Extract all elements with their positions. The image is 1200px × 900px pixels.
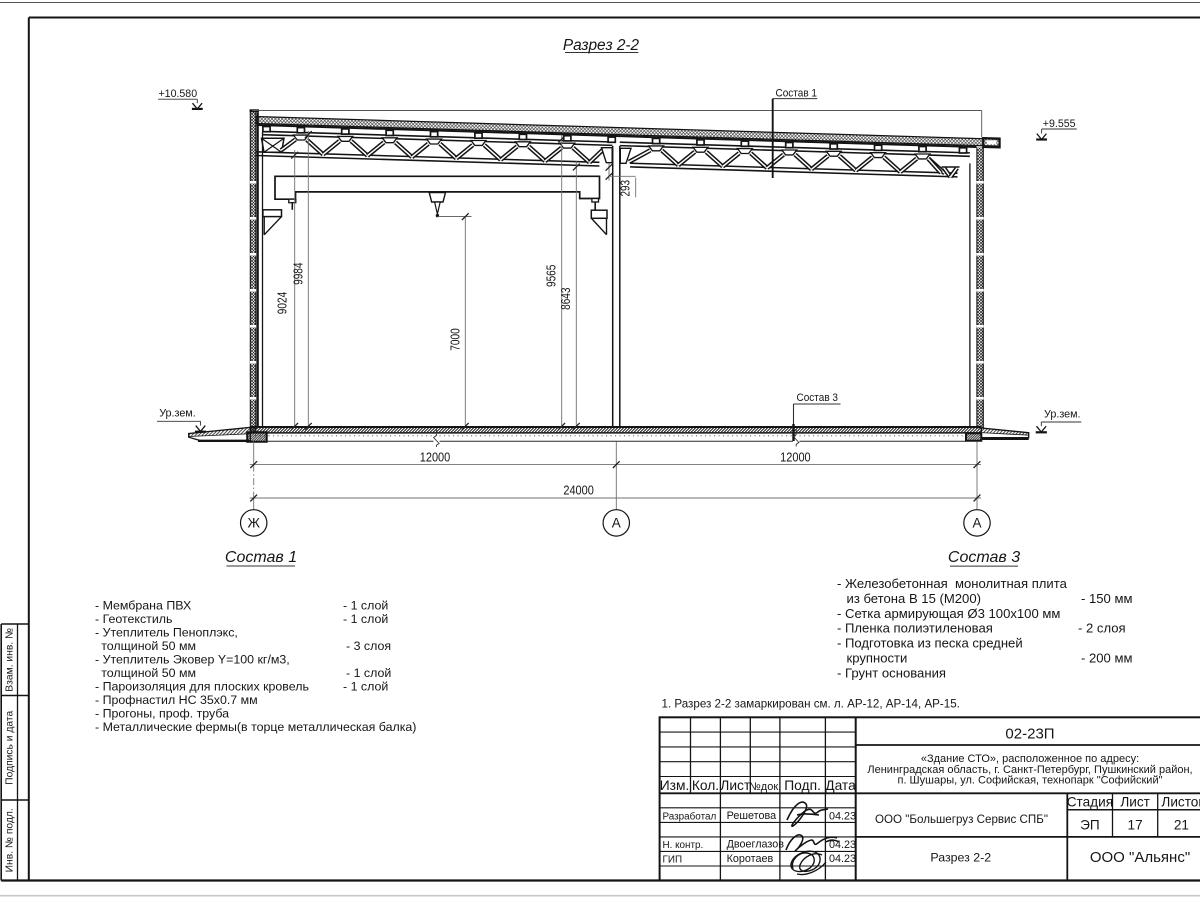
svg-text:Коротаев: Коротаев — [727, 853, 774, 865]
svg-text:Разработал: Разработал — [663, 812, 717, 823]
svg-text:Состав 1: Состав 1 — [776, 88, 818, 100]
svg-text:1. Разрез 2-2 замаркирован см.: 1. Разрез 2-2 замаркирован см. л. АР-12,… — [662, 698, 960, 711]
svg-text:п. Шушары, ул. Софийская, техн: п. Шушары, ул. Софийская, технопарк "Соф… — [897, 775, 1162, 787]
svg-text:- Профнастил НС 35х0.7 мм: - Профнастил НС 35х0.7 мм — [95, 693, 258, 707]
svg-text:Подпись и дата: Подпись и дата — [5, 710, 16, 784]
svg-text:- Утеплитель Эковер Y=100 кг/м: - Утеплитель Эковер Y=100 кг/м3, — [95, 653, 290, 667]
svg-text:12000: 12000 — [420, 449, 451, 464]
svg-text:толщиной 50 мм: толщиной 50 мм — [95, 666, 196, 680]
svg-text:из бетона В 15 (М200): из бетона В 15 (М200) — [847, 591, 982, 606]
svg-text:- 1 слой: - 1 слой — [343, 680, 388, 694]
svg-text:Состав 3: Состав 3 — [948, 549, 1020, 566]
svg-text:8643: 8643 — [559, 288, 573, 310]
svg-text:Лист: Лист — [1120, 795, 1150, 810]
svg-text:Ж: Ж — [247, 516, 260, 531]
svg-text:12000: 12000 — [780, 449, 811, 464]
svg-text:Инв. № подл.: Инв. № подл. — [5, 808, 16, 872]
svg-text:Кол.: Кол. — [692, 778, 719, 793]
svg-text:- Пароизоляция для плоских кро: - Пароизоляция для плоских кровель — [95, 680, 309, 694]
svg-text:ЭП: ЭП — [1080, 818, 1100, 833]
svg-text:Состав 1: Состав 1 — [225, 549, 297, 566]
svg-text:ООО "Альянс": ООО "Альянс" — [1090, 849, 1190, 866]
svg-text:293: 293 — [619, 180, 633, 197]
svg-text:- Металлические фермы(в торце: - Металлические фермы(в торце металличес… — [95, 720, 416, 734]
svg-text:Двоеглазов: Двоеглазов — [727, 839, 785, 851]
svg-text:Н. контр.: Н. контр. — [663, 840, 704, 851]
svg-text:- Грунт основания: - Грунт основания — [837, 665, 946, 680]
svg-text:Подп.: Подп. — [784, 778, 821, 793]
svg-text:+10.580: +10.580 — [159, 88, 198, 100]
svg-text:Ур.зем.: Ур.зем. — [1044, 409, 1081, 421]
svg-text:02-23П: 02-23П — [1005, 726, 1054, 743]
svg-text:- 2 слоя: - 2 слоя — [1078, 621, 1126, 636]
svg-text:9984: 9984 — [292, 263, 306, 285]
svg-text:- 1 слой: - 1 слой — [343, 612, 388, 626]
svg-text:А: А — [612, 516, 621, 531]
svg-text:- 1 слой: - 1 слой — [346, 666, 391, 680]
svg-text:- 200 мм: - 200 мм — [1081, 651, 1133, 666]
svg-text:- Подготовка из песка средней: - Подготовка из песка средней — [837, 636, 1023, 651]
svg-text:ООО "Большегруз Сервис СПБ": ООО "Большегруз Сервис СПБ" — [875, 813, 1048, 826]
svg-text:21: 21 — [1174, 818, 1189, 833]
svg-text:9565: 9565 — [544, 265, 558, 287]
svg-text:Разрез 2-2: Разрез 2-2 — [930, 851, 991, 865]
svg-text:- Сетка армирующая Ø3 100х100: - Сетка армирующая Ø3 100х100 мм — [837, 606, 1060, 621]
svg-text:Ур.зем.: Ур.зем. — [159, 408, 196, 420]
svg-text:04.23: 04.23 — [829, 853, 856, 865]
svg-text:толщиной 50 мм: толщиной 50 мм — [95, 639, 196, 653]
svg-text:- 150 мм: - 150 мм — [1081, 591, 1133, 606]
svg-text:А: А — [972, 516, 981, 531]
svg-text:7000: 7000 — [449, 328, 463, 350]
svg-text:- Железобетонная монолитная п: - Железобетонная монолитная плита — [837, 576, 1068, 591]
svg-text:№док.: №док. — [749, 781, 781, 793]
svg-text:04.23: 04.23 — [829, 811, 856, 823]
svg-text:Состав 3: Состав 3 — [797, 392, 839, 404]
svg-text:крупности: крупности — [847, 651, 908, 666]
svg-text:- Прогоны, проф. труба: - Прогоны, проф. труба — [95, 707, 229, 721]
svg-text:Изм.: Изм. — [660, 778, 690, 793]
svg-text:Решетова: Решетова — [727, 810, 777, 822]
svg-text:- Утеплитель Пеноплэкс,: - Утеплитель Пеноплэкс, — [95, 626, 238, 640]
svg-text:ГИП: ГИП — [663, 855, 683, 866]
svg-text:- Мембрана ПВХ: - Мембрана ПВХ — [95, 599, 191, 613]
svg-text:- Геотекстиль: - Геотекстиль — [95, 612, 172, 626]
svg-text:+9.555: +9.555 — [1043, 118, 1076, 130]
svg-text:- Пленка полиэтиленовая: - Пленка полиэтиленовая — [837, 621, 993, 636]
svg-text:Разрез 2-2: Разрез 2-2 — [563, 37, 640, 54]
svg-text:Дата: Дата — [825, 778, 856, 793]
svg-text:9024: 9024 — [276, 292, 290, 314]
svg-text:- 3 слоя: - 3 слоя — [346, 639, 391, 653]
svg-text:Лист: Лист — [720, 778, 751, 793]
svg-text:Взам. инв. №: Взам. инв. № — [5, 628, 16, 692]
svg-text:Листов: Листов — [1161, 795, 1200, 810]
svg-text:- 1 слой: - 1 слой — [343, 599, 388, 613]
svg-text:17: 17 — [1128, 818, 1143, 833]
svg-text:04.23: 04.23 — [829, 839, 856, 851]
svg-text:Стадия: Стадия — [1067, 795, 1113, 810]
svg-text:24000: 24000 — [563, 483, 594, 498]
